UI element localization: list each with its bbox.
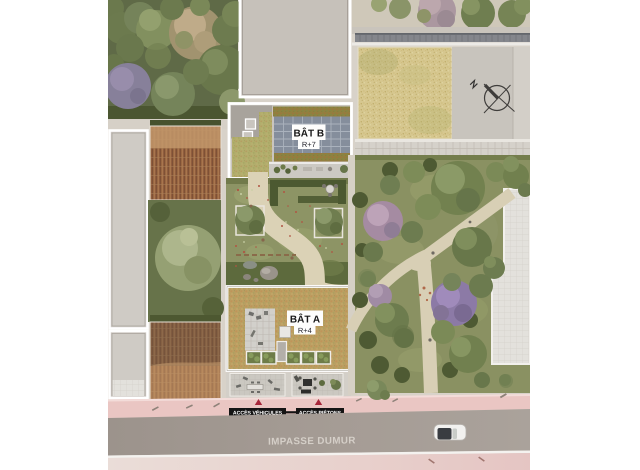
svg-text:R+4: R+4 xyxy=(298,326,312,335)
svg-text:R+7: R+7 xyxy=(302,140,316,149)
svg-text:BÂT B: BÂT B xyxy=(294,128,325,140)
svg-text:IMPASSE DUMUR: IMPASSE DUMUR xyxy=(268,435,356,447)
svg-text:BÂT A: BÂT A xyxy=(290,314,320,326)
